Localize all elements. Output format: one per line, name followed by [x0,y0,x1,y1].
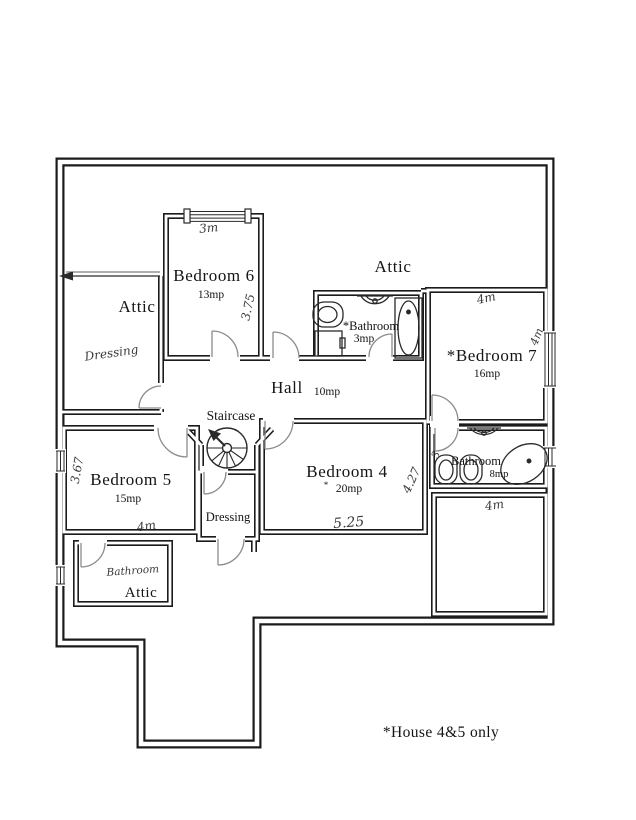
bedroom5-label: Bedroom 5 [90,470,171,489]
storage-top-dim: 4m [483,497,505,514]
attic-sw-window [56,567,65,584]
bedroom6-label: Bedroom 6 [173,266,254,285]
staircase-spiral [207,428,247,468]
bedroom5-bottom-dim: 4m [135,518,157,535]
washer-icon [315,331,345,356]
attic-nw-annotation: Dressing [83,342,140,364]
hall-label: Hall [271,378,303,397]
attic-top-label: Attic [375,257,412,276]
attic-arrow-line [59,272,160,281]
attic-sw-label: Attic [125,585,158,601]
dressing-label: Dressing [206,510,251,524]
bedroom4-side-dim: 4.27 [399,465,424,496]
bedroom4-area: 20mp [336,483,362,495]
bedroom6-area: 13mp [198,289,224,301]
walls [60,162,550,744]
house-note: *House 4&5 only [383,724,499,741]
bathroom3-label: *Bathroom [343,319,400,333]
bedroom4-area-mark: * [324,480,329,490]
bedroom5-side-dim: 3.67 [68,456,86,485]
windows [56,209,556,584]
bedroom5-window [56,451,65,471]
bedroom7-top-dim: 4m [474,289,496,307]
bedroom6-side-dim: 3.75 [238,293,257,322]
bedroom4-label: Bedroom 4 [306,462,387,481]
bedroom7-label: *Bedroom 7 [447,346,538,365]
bathroom3-area: 3mp [354,333,375,345]
attic-nw-label: Attic [119,297,156,316]
outer-wall [60,162,550,744]
bathroom8-area: 8mp [490,469,509,480]
attic-sw-annotation: Bathroom [105,563,159,579]
bathroom8-label: Bathroom [451,454,501,468]
bedroom6-top-dim: 3m [199,220,219,236]
outer-wall-core [60,162,550,744]
bedroom7-area: 16mp [474,368,500,380]
floor-plan-page: Attic Bedroom 6 13mp Attic *Bathroom 3mp… [0,0,636,820]
bedroom4-bottom-dim: 5.25 [333,514,365,532]
hall-area: 10mp [314,386,340,398]
bedroom5-area: 15mp [115,493,141,505]
floor-plan: Attic Bedroom 6 13mp Attic *Bathroom 3mp… [0,0,636,820]
staircase-label: Staircase [207,408,256,423]
sink-icon [357,296,393,304]
handwritten-annotations: Dressing 3m 3.75 4m 4m 3.67 4m 5.25 4.27… [68,220,546,579]
